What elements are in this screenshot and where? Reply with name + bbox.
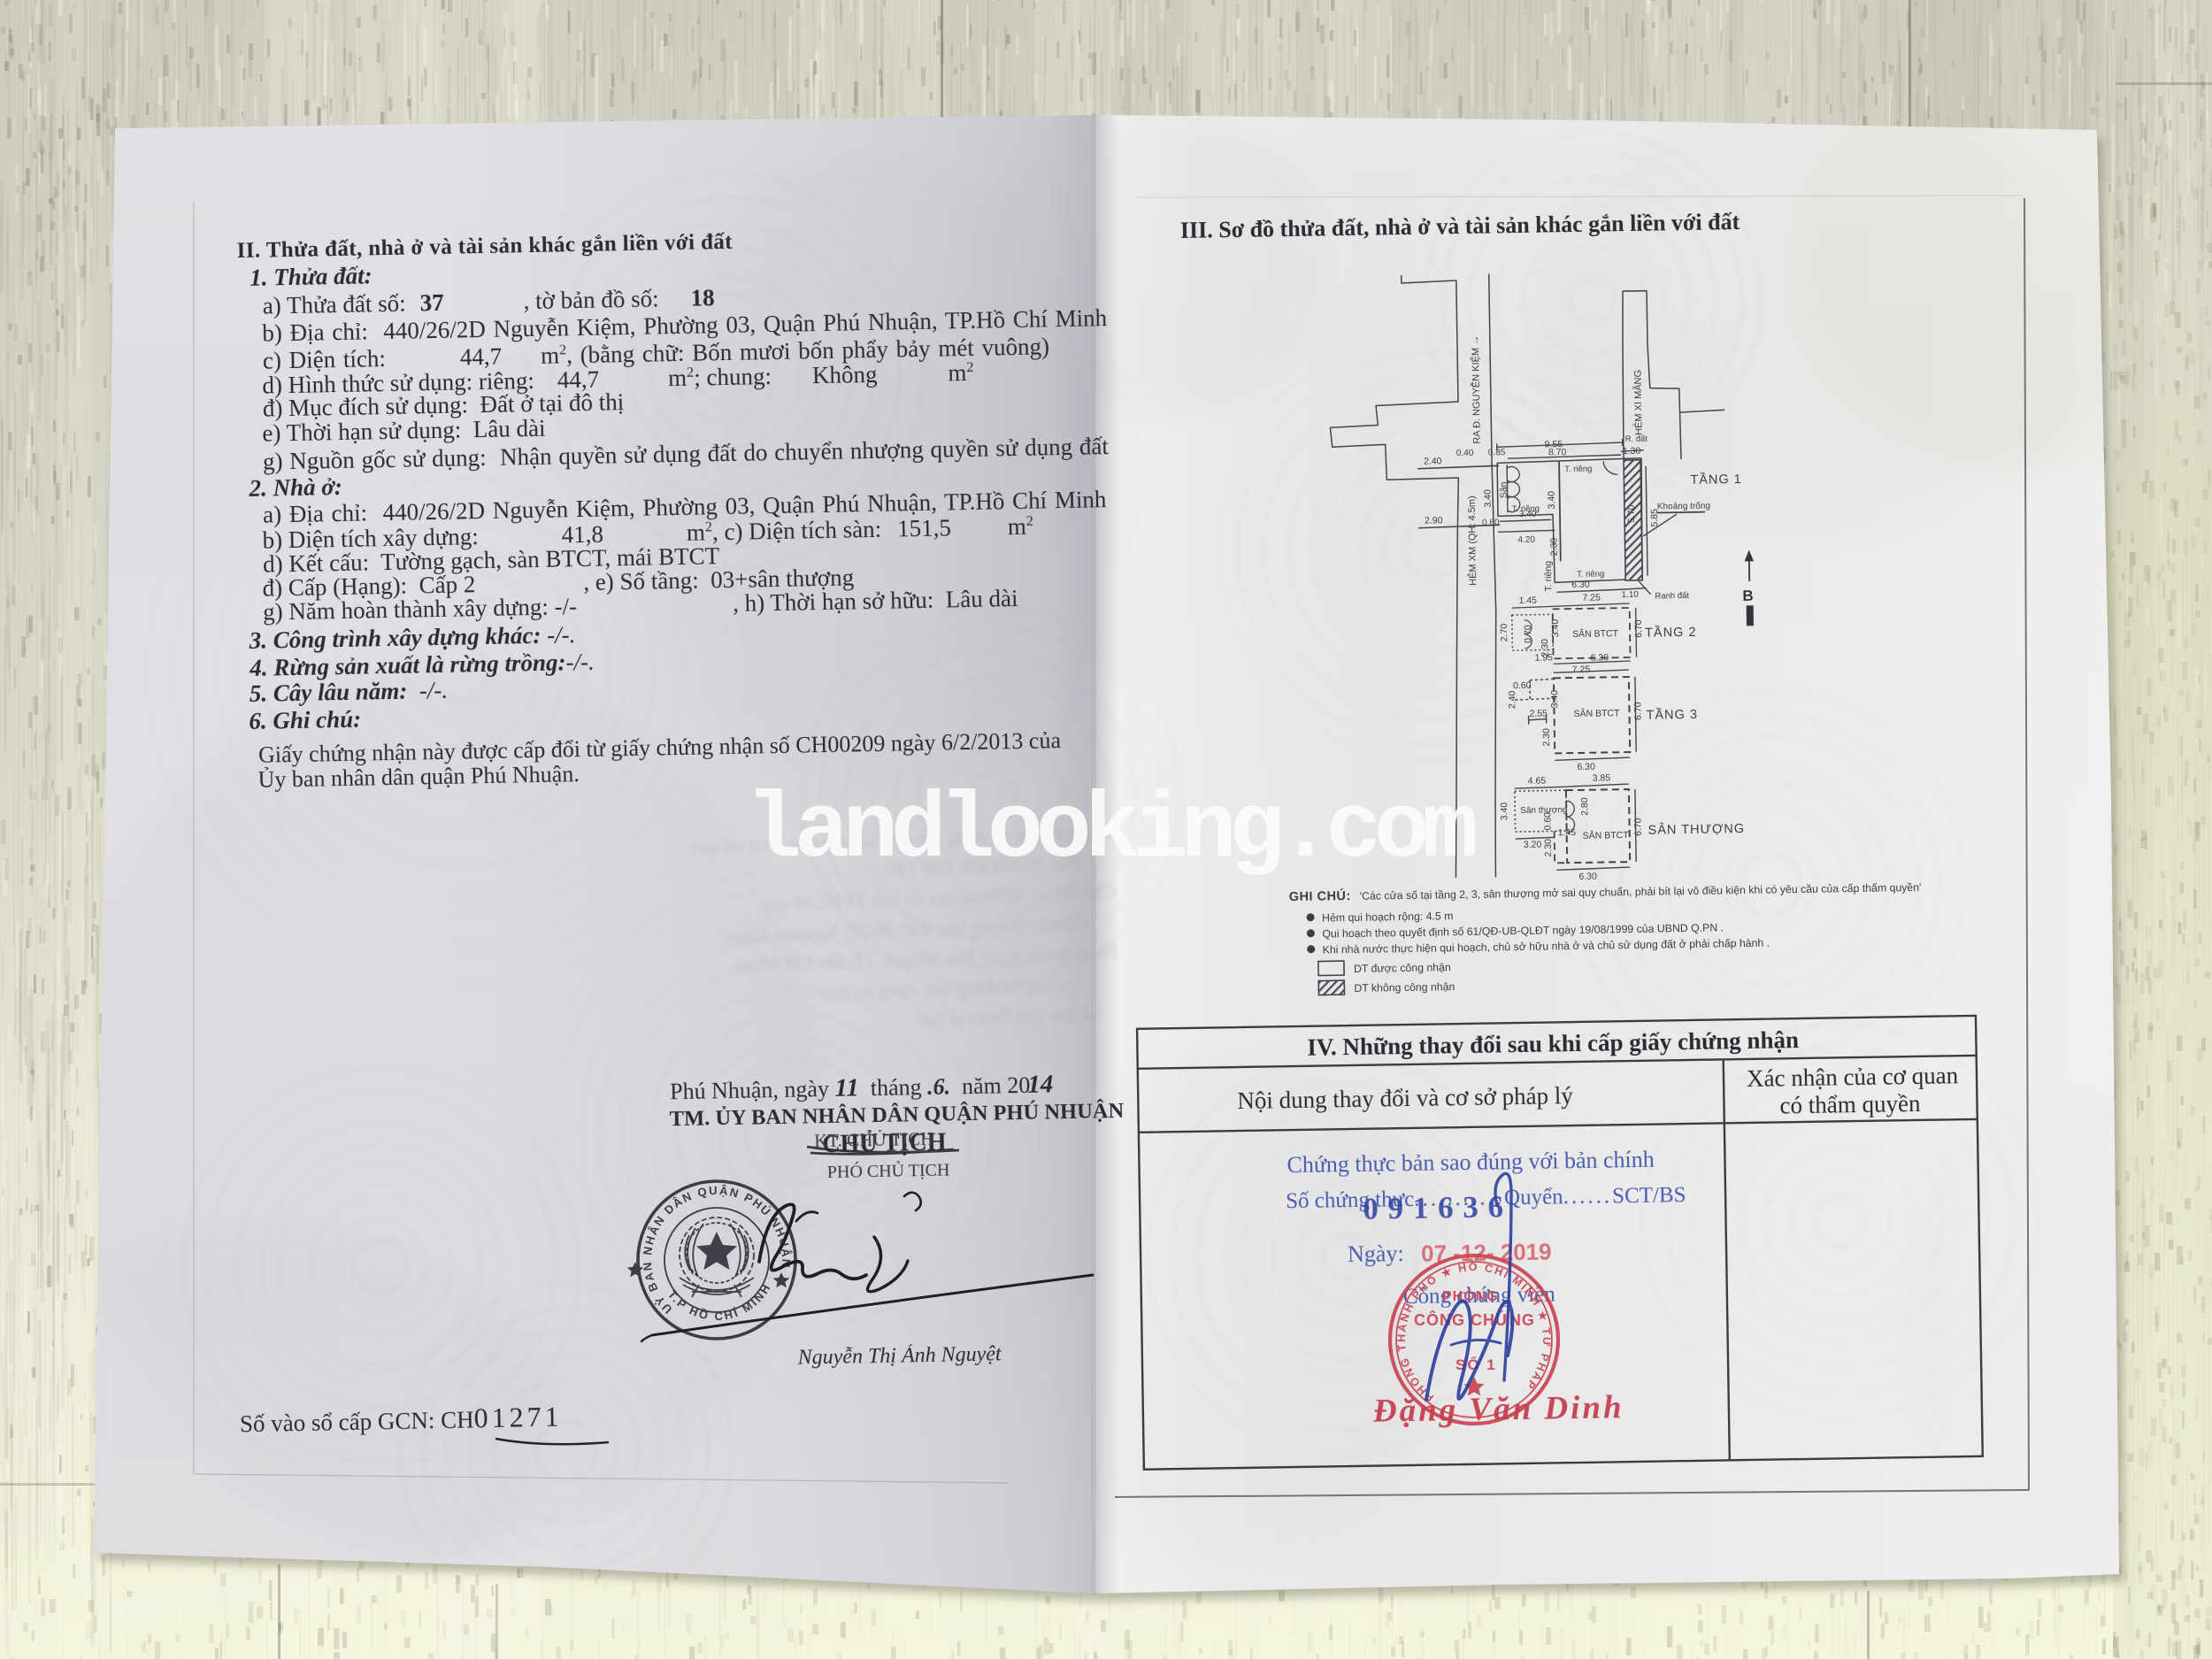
svg-text:PHÒNG: PHÒNG: [1442, 1287, 1499, 1304]
svg-text:CÔNG CHỨNG: CÔNG CHỨNG: [1414, 1310, 1535, 1329]
